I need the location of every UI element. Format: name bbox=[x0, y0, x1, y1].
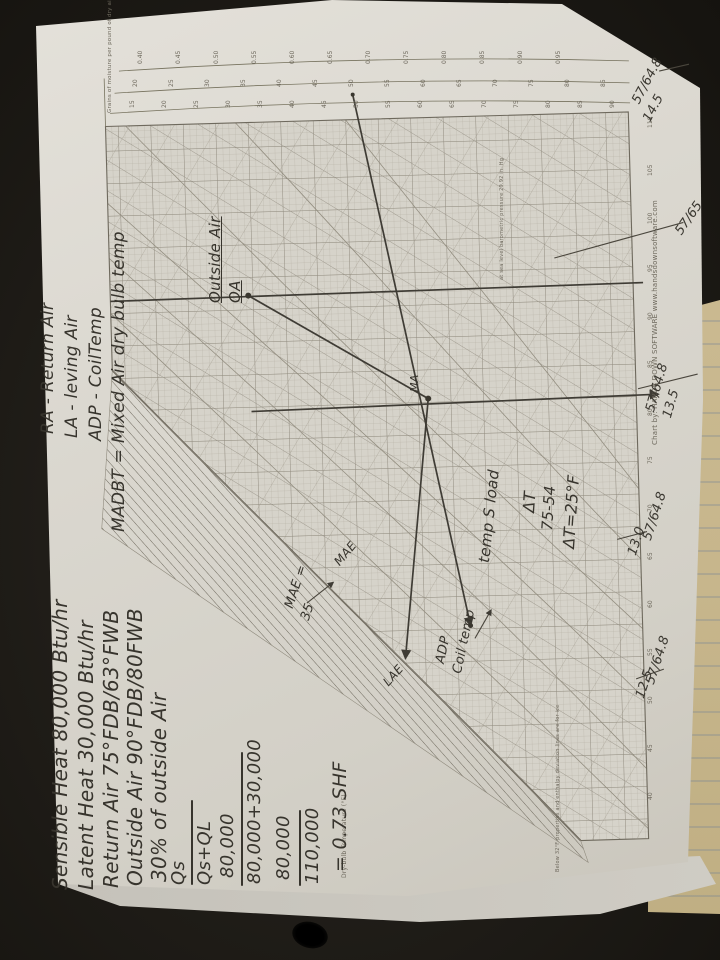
note-percent-oa: 30% of outside Air bbox=[149, 693, 169, 882]
calc-num2: 80,000 bbox=[219, 813, 237, 878]
enthalpy-scale-tick: 85 bbox=[601, 79, 607, 87]
enthalpy-scale-tick: 40 bbox=[277, 79, 283, 87]
enthalpy-scale-tick: 25 bbox=[169, 79, 175, 87]
shf-scale-tick: 0.80 bbox=[442, 51, 448, 64]
abbr-adp: ADP - CoilTemp bbox=[88, 307, 105, 441]
abbr-ra: RA - Return Air bbox=[40, 303, 57, 434]
label-oa: OA bbox=[228, 280, 243, 303]
enthalpy-scale-tick: 55 bbox=[385, 79, 391, 87]
drybulb-axis-tick: 50 bbox=[648, 696, 654, 704]
grains-scale-tick: 15 bbox=[130, 100, 136, 108]
shf-scale-tick: 0.70 bbox=[366, 51, 372, 64]
shf-scale-tick: 0.95 bbox=[556, 51, 562, 64]
enthalpy-scale-tick: 70 bbox=[493, 79, 499, 87]
shf-scale-tick: 0.55 bbox=[252, 51, 258, 64]
drybulb-axis-tick: 75 bbox=[648, 456, 654, 464]
grains-scale-tick: 85 bbox=[578, 100, 584, 108]
label-outside-air: Outside Air bbox=[208, 216, 223, 303]
drybulb-axis-tick: 45 bbox=[648, 744, 654, 752]
enthalpy-scale-tick: 75 bbox=[529, 79, 535, 87]
grains-caption: Grains of moisture per pound of dry air bbox=[108, 0, 114, 113]
enthalpy-scale-tick: 50 bbox=[349, 79, 355, 87]
grains-scale-tick: 50 bbox=[354, 100, 360, 108]
grains-scale-tick: 80 bbox=[546, 100, 552, 108]
fraction-bar-1 bbox=[191, 800, 193, 885]
enthalpy-scale-tick: 20 bbox=[133, 79, 139, 87]
grains-scale-tick: 30 bbox=[226, 100, 232, 108]
note-sensible-heat: Sensible Heat 80,000 Btu/hr bbox=[50, 599, 70, 890]
grains-scale-tick: 90 bbox=[610, 100, 616, 108]
grains-scale-tick: 65 bbox=[450, 100, 456, 108]
shf-scale-tick: 0.65 bbox=[328, 51, 334, 64]
photo-scene: 0.400.450.500.550.600.650.700.750.800.85… bbox=[0, 0, 720, 960]
note-return-air: Return Air 75°FDB/63°FWB bbox=[101, 610, 121, 888]
drybulb-axis-tick: 40 bbox=[648, 792, 654, 800]
note-outside-air: Outside Air 90°FDB/80FWB bbox=[125, 608, 145, 886]
grains-scale-tick: 40 bbox=[290, 100, 296, 108]
ice-note: Below 32°F properties and enthalpy devia… bbox=[556, 705, 561, 872]
grains-scale-tick: 55 bbox=[386, 100, 392, 108]
grains-scale-tick: 25 bbox=[194, 100, 200, 108]
grains-scale-tick: 60 bbox=[418, 100, 424, 108]
grains-scale-tick: 35 bbox=[258, 100, 264, 108]
calc-den2: 80,000+30,000 bbox=[246, 739, 264, 884]
shf-scale-tick: 0.40 bbox=[138, 51, 144, 64]
calc-num3: 80,000 bbox=[275, 815, 293, 880]
abbr-la: LA - leving Air bbox=[64, 315, 81, 438]
calc-den1: Qs+QL bbox=[196, 821, 214, 885]
grains-scale-tick: 75 bbox=[514, 100, 520, 108]
shf-scale-tick: 0.85 bbox=[480, 51, 486, 64]
calc-num1: Qs bbox=[170, 861, 188, 885]
drybulb-axis-tick: 60 bbox=[648, 600, 654, 608]
shf-scale-tick: 0.45 bbox=[176, 51, 182, 64]
shf-scale-tick: 0.90 bbox=[518, 51, 524, 64]
grains-scale-tick: 70 bbox=[482, 100, 488, 108]
abbr-madbt: MADBT = Mixed Air dry bulb temp bbox=[111, 231, 128, 532]
enthalpy-scale-tick: 45 bbox=[313, 79, 319, 87]
pressure-note: at sea level barometric pressure 29.92 i… bbox=[500, 158, 505, 280]
grains-scale-tick: 20 bbox=[162, 100, 168, 108]
shf-scale-tick: 0.75 bbox=[404, 51, 410, 64]
enthalpy-scale-tick: 30 bbox=[205, 79, 211, 87]
enthalpy-scale-tick: 35 bbox=[241, 79, 247, 87]
enthalpy-scale-tick: 60 bbox=[421, 79, 427, 87]
drybulb-axis-tick: 65 bbox=[648, 552, 654, 560]
label-delta-sub: 75-54 bbox=[540, 485, 558, 531]
fraction-bar-3 bbox=[299, 810, 301, 886]
enthalpy-scale-tick: 65 bbox=[457, 79, 463, 87]
fraction-bar-2 bbox=[241, 752, 243, 886]
grains-scale-tick: 45 bbox=[322, 100, 328, 108]
shf-scale-tick: 0.60 bbox=[290, 51, 296, 64]
shf-scale-tick: 0.50 bbox=[214, 51, 220, 64]
calc-result: = 0.73 SHF bbox=[331, 761, 350, 872]
label-ma: MA bbox=[409, 374, 420, 392]
note-latent-heat: Latent Heat 30,000 Btu/hr bbox=[76, 620, 96, 890]
enthalpy-scale-tick: 80 bbox=[565, 79, 571, 87]
drybulb-axis-tick: 105 bbox=[648, 165, 654, 176]
label-delta-t: ΔT bbox=[521, 491, 538, 513]
calc-den3: 110,000 bbox=[304, 807, 322, 884]
